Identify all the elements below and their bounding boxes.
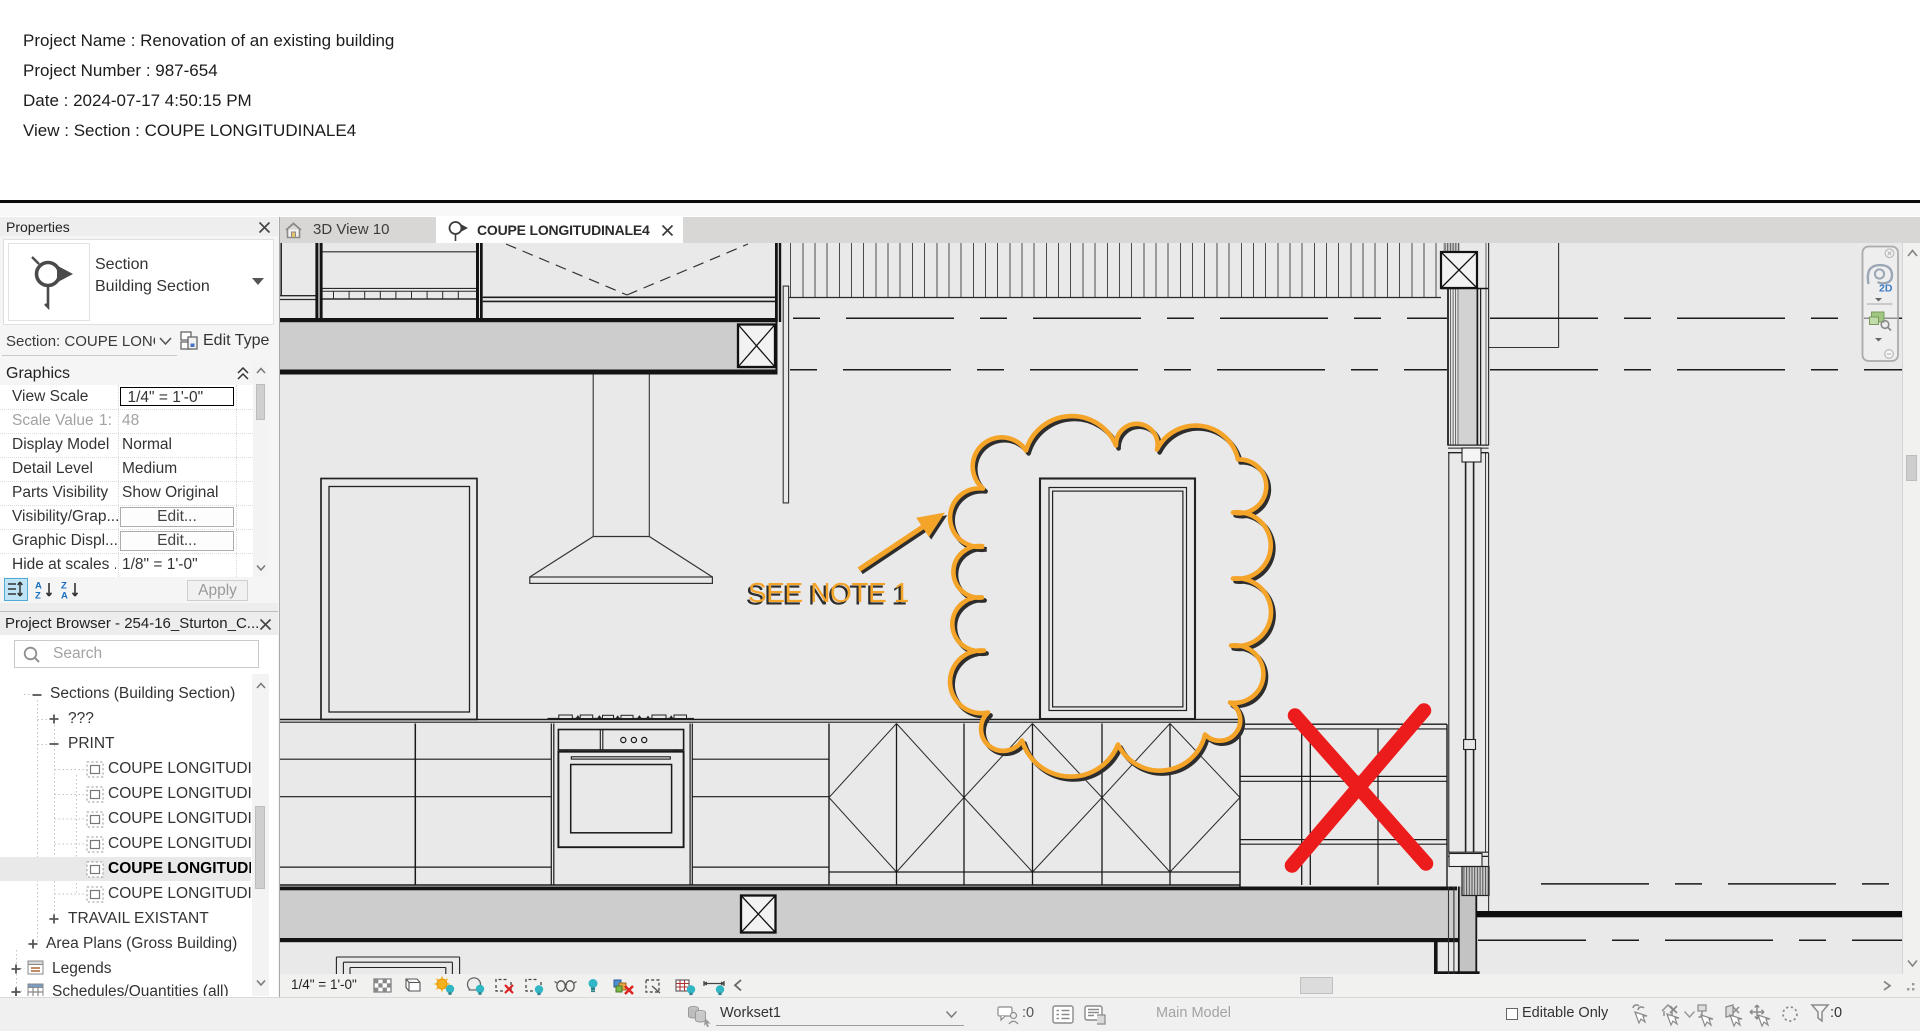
svg-text:SEE NOTE 1: SEE NOTE 1 [748,576,909,607]
svg-text:A: A [61,591,68,601]
svg-text:Z: Z [35,591,41,601]
svg-text:2D: 2D [1879,282,1893,294]
